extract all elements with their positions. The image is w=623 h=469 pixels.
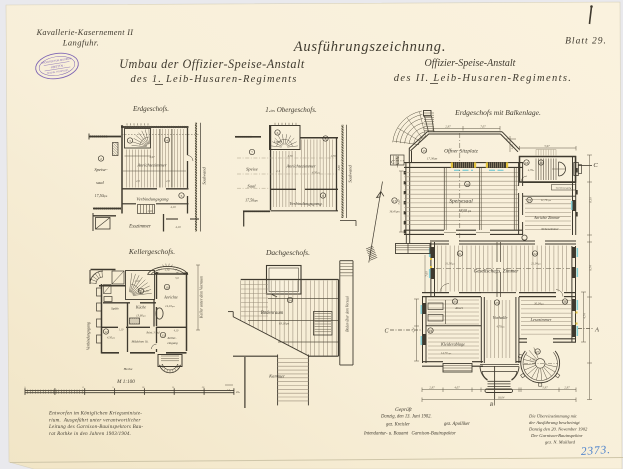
svg-text:Bodenraum: Bodenraum	[261, 311, 284, 316]
svg-text:Rebst. 3 Stuf: Rebst. 3 Stuf	[145, 332, 160, 335]
svg-text:19: 19	[528, 198, 532, 202]
svg-text:Spüle: Spüle	[111, 307, 119, 311]
svg-text:1,10: 1,10	[119, 329, 124, 332]
svg-text:8: 8	[325, 137, 327, 141]
svg-text:Boden über dem Vorsaal: Boden über dem Vorsaal	[346, 296, 350, 331]
svg-text:2373.: 2373.	[580, 444, 611, 458]
svg-text:Nebenzimmer: Nebenzimmer	[540, 227, 559, 231]
svg-text:21: 21	[458, 252, 462, 256]
svg-text:C: C	[593, 162, 598, 169]
svg-text:Dachgeschofs.: Dachgeschofs.	[265, 248, 310, 257]
svg-text:Verbindungsgang.: Verbindungsgang.	[289, 201, 322, 206]
svg-text:1,70: 1,70	[165, 269, 170, 272]
svg-text:des 1. Leib-Husaren-Regiments: des 1. Leib-Husaren-Regiments	[130, 74, 297, 85]
svg-text:rat Rothke in den Jahren 1903/: rat Rothke in den Jahren 1903/1904.	[49, 432, 131, 437]
svg-text:Danzig den 20. November 1902: Danzig den 20. November 1902	[528, 427, 588, 432]
svg-text:Speise: Speise	[246, 167, 258, 172]
svg-text:Kellergeschofs.: Kellergeschofs.	[128, 247, 175, 256]
svg-text:26: 26	[563, 300, 567, 304]
svg-text:38,40 qm: 38,40 qm	[390, 211, 400, 214]
svg-text:saal: saal	[96, 180, 104, 185]
svg-text:Offizier-Speise-Anstalt: Offizier-Speise-Anstalt	[425, 58, 516, 69]
svg-text:40m: 40m	[236, 391, 241, 394]
svg-text:Offner Sitzplatz: Offner Sitzplatz	[444, 148, 479, 155]
svg-text:Saalwand: Saalwand	[202, 167, 207, 185]
svg-text:4,10: 4,10	[174, 330, 179, 333]
svg-text:Intendantur- u. Bauamt Garni: Intendantur- u. Bauamt Garnison-Bauinspe…	[363, 432, 456, 437]
svg-text:10: 10	[165, 285, 169, 289]
svg-text:4,70m: 4,70m	[528, 169, 535, 172]
svg-text:Hecke: Hecke	[123, 367, 133, 371]
svg-text:Die Übereinstimmung mit: Die Übereinstimmung mit	[528, 414, 577, 419]
svg-text:Verbindungsgang: Verbindungsgang	[136, 197, 169, 202]
svg-text:Verbindungsgang: Verbindungsgang	[86, 322, 91, 350]
svg-text:24: 24	[429, 329, 433, 333]
svg-text:Anrichtezimmer: Anrichtezimmer	[136, 163, 167, 168]
svg-text:gez. Apolliker: gez. Apolliker	[444, 422, 470, 427]
svg-text:6: 6	[277, 131, 279, 135]
svg-text:Leitung des Garnison-Bauinspek: Leitung des Garnison-Bauinspektors Bau-	[48, 425, 143, 430]
svg-text:Entworfen im Königlichen Krieg: Entworfen im Königlichen Kriegsministe-	[48, 412, 142, 417]
svg-text:Anrichte: Anrichte	[163, 295, 178, 300]
svg-text:16: 16	[466, 182, 470, 186]
svg-text:27: 27	[536, 350, 540, 354]
svg-text:11: 11	[139, 289, 143, 293]
svg-text:gez. Kreisler: gez. Kreisler	[386, 423, 410, 428]
svg-text:3: 3	[129, 139, 131, 143]
svg-text:5: 5	[181, 194, 183, 198]
svg-text:Kavallerie-Kasernement II: Kavallerie-Kasernement II	[36, 28, 135, 37]
svg-text:der Ausführung bescheinigt: der Ausführung bescheinigt	[529, 420, 580, 425]
svg-text:12: 12	[104, 330, 108, 334]
svg-text:Lesezimmer: Lesezimmer	[530, 317, 552, 322]
svg-text:Vorhalle: Vorhalle	[493, 315, 508, 320]
svg-text:1,10: 1,10	[144, 290, 149, 293]
svg-text:Speise-: Speise-	[94, 167, 108, 172]
svg-text:Küche: Küche	[135, 305, 146, 310]
svg-text:Gesellschafts Zimmer: Gesellschafts Zimmer	[474, 270, 519, 275]
svg-text:Speisesaal: Speisesaal	[449, 199, 473, 205]
svg-text:C: C	[391, 160, 395, 166]
svg-text:18: 18	[525, 161, 529, 165]
svg-text:20: 20	[539, 161, 543, 165]
svg-text:des II. Leib-Husaren-Regiments: des II. Leib-Husaren-Regiments.	[394, 73, 573, 84]
svg-text:Der Garnison-Bauinspektor: Der Garnison-Bauinspektor	[530, 433, 583, 438]
svg-text:Langfuhr.: Langfuhr.	[62, 38, 99, 48]
svg-text:25: 25	[495, 301, 499, 305]
svg-text:4: 4	[166, 138, 168, 142]
svg-text:M 1:100: M 1:100	[116, 379, 135, 385]
svg-text:1.tes Obergeschofs.: 1.tes Obergeschofs.	[265, 106, 317, 114]
svg-text:Saalwand: Saalwand	[348, 165, 353, 183]
svg-text:Anrichtezimmer: Anrichtezimmer	[285, 164, 316, 169]
svg-text:4,70m: 4,70m	[530, 359, 537, 362]
svg-text:eingang: eingang	[167, 341, 178, 345]
svg-text:Geprüft: Geprüft	[395, 406, 412, 413]
svg-text:1,10: 1,10	[135, 280, 140, 283]
svg-text:Logen: Logen	[273, 140, 282, 144]
svg-text:Gartenausgang: Gartenausgang	[556, 187, 572, 190]
svg-text:Anrichte Zimmer: Anrichte Zimmer	[533, 216, 560, 220]
svg-text:Esszimmer: Esszimmer	[128, 225, 151, 230]
svg-text:Kleiderablage: Kleiderablage	[440, 342, 465, 347]
svg-text:gez. N. Maillard: gez. N. Maillard	[545, 440, 576, 445]
svg-text:15: 15	[422, 149, 426, 153]
svg-text:Blatt 29.: Blatt 29.	[565, 37, 607, 47]
svg-text:7: 7	[251, 150, 253, 154]
svg-text:1,40: 1,40	[511, 144, 514, 149]
svg-text:Danzig, den 13. Juni 1902.: Danzig, den 13. Juni 1902.	[380, 415, 432, 420]
svg-text:Keller unter dem Vorraum: Keller unter dem Vorraum	[199, 276, 204, 319]
svg-text:Kammer: Kammer	[268, 374, 285, 379]
svg-text:13: 13	[161, 333, 165, 337]
svg-text:Mädchen St.: Mädchen St.	[131, 340, 149, 344]
svg-text:9: 9	[322, 194, 324, 198]
svg-text:rium. Ausgeführt unter verant: rium. Ausgeführt unter verantwortlicher	[49, 418, 141, 423]
svg-text:Saal: Saal	[247, 184, 256, 189]
svg-text:22: 22	[533, 252, 537, 256]
svg-text:Abort: Abort	[454, 306, 464, 310]
svg-text:5,0: 5,0	[175, 277, 179, 280]
svg-text:2: 2	[100, 157, 102, 161]
svg-text:23: 23	[453, 300, 457, 304]
svg-text:Erdgeschofs mit Balkenlage.: Erdgeschofs mit Balkenlage.	[454, 108, 541, 117]
svg-text:Ausführungszeichnung.: Ausführungszeichnung.	[293, 39, 447, 55]
svg-text:14: 14	[288, 298, 292, 302]
svg-text:Keller-: Keller-	[167, 336, 177, 340]
svg-text:Erdgeschofs.: Erdgeschofs.	[132, 105, 169, 113]
svg-text:Umbau der Offizier-Speise-Anst: Umbau der Offizier-Speise-Anstalt	[119, 57, 305, 71]
svg-text:A: A	[594, 327, 599, 334]
